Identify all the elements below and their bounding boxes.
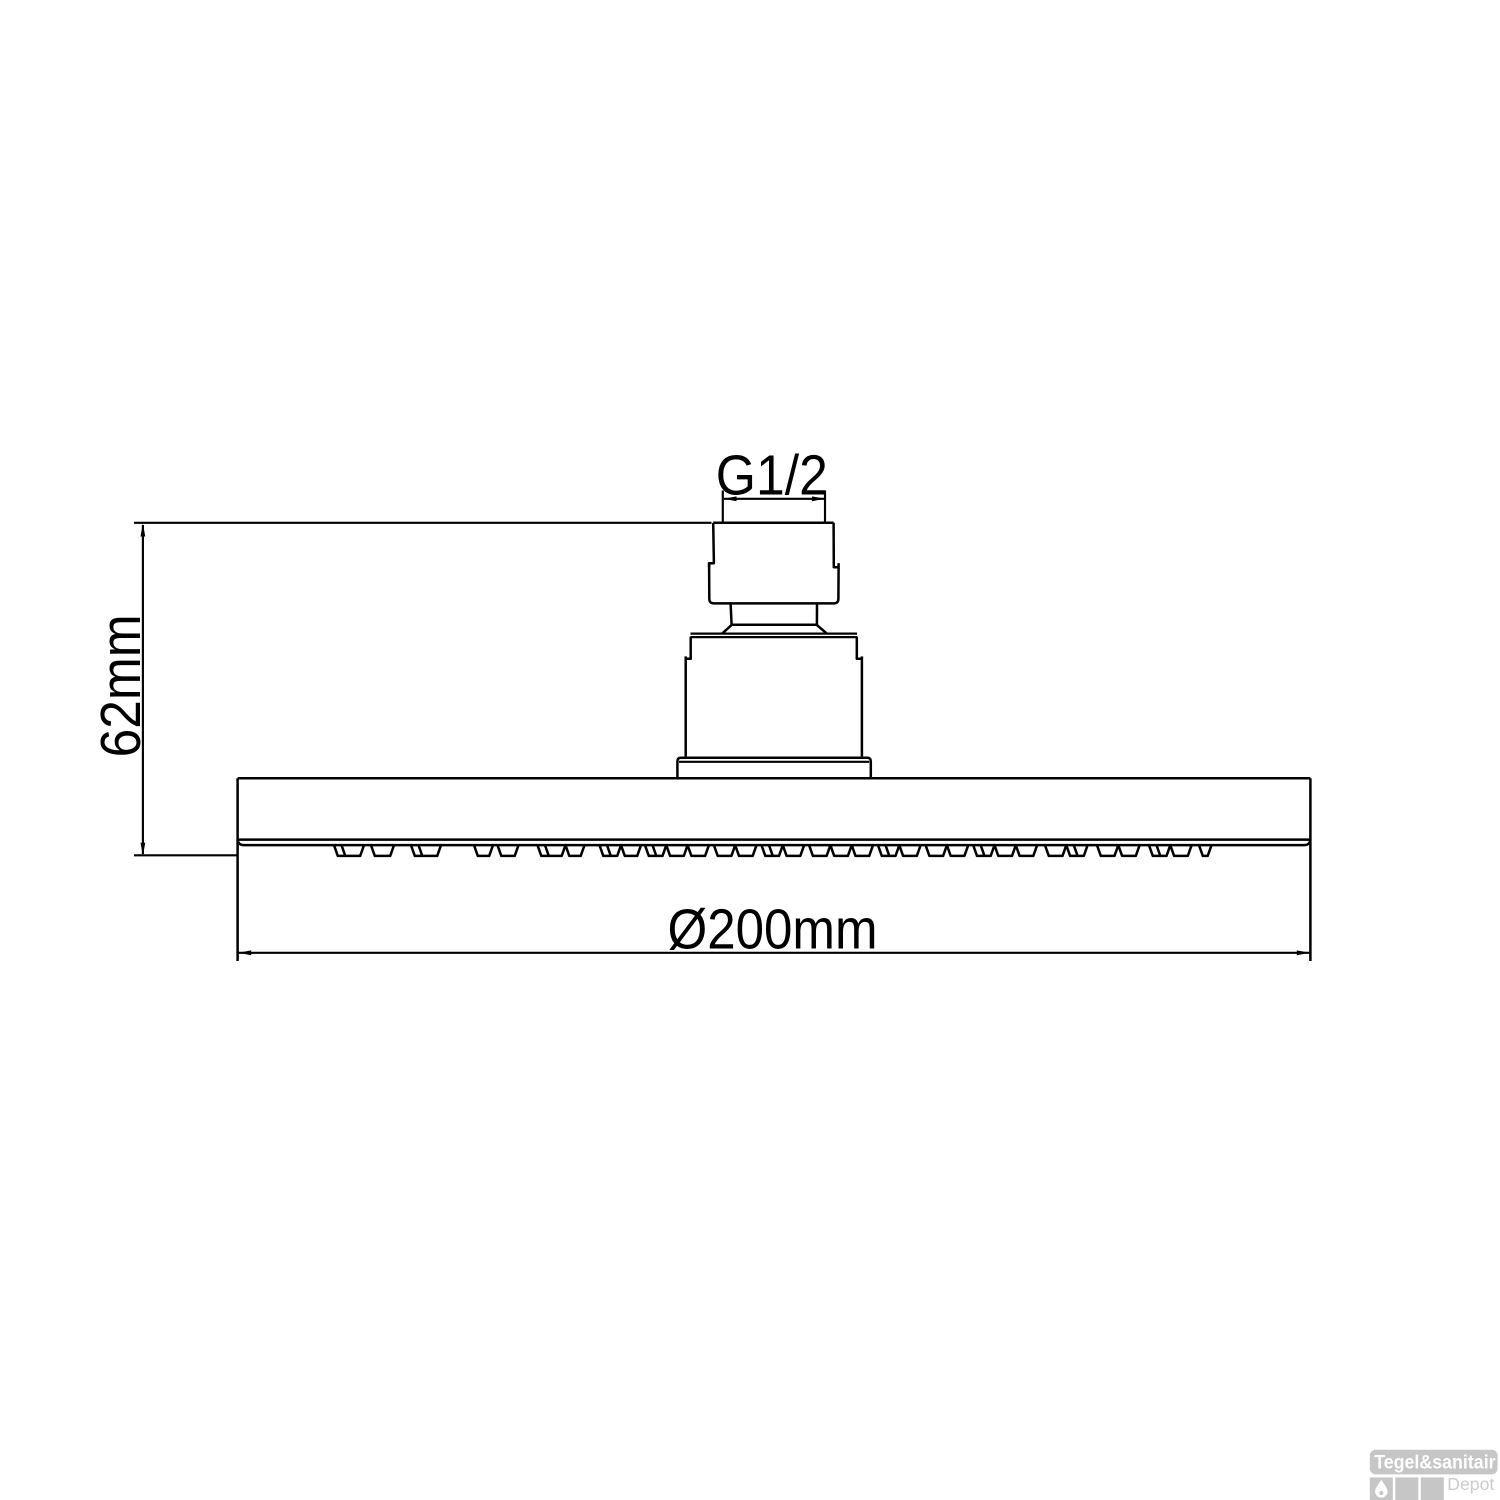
svg-text:Ø200mm: Ø200mm bbox=[668, 897, 878, 961]
svg-text:Tegel&sanitair: Tegel&sanitair bbox=[1374, 1453, 1496, 1474]
svg-text:Depot: Depot bbox=[1447, 1474, 1494, 1494]
svg-text:62mm: 62mm bbox=[89, 614, 153, 757]
svg-text:G1/2: G1/2 bbox=[716, 444, 828, 508]
